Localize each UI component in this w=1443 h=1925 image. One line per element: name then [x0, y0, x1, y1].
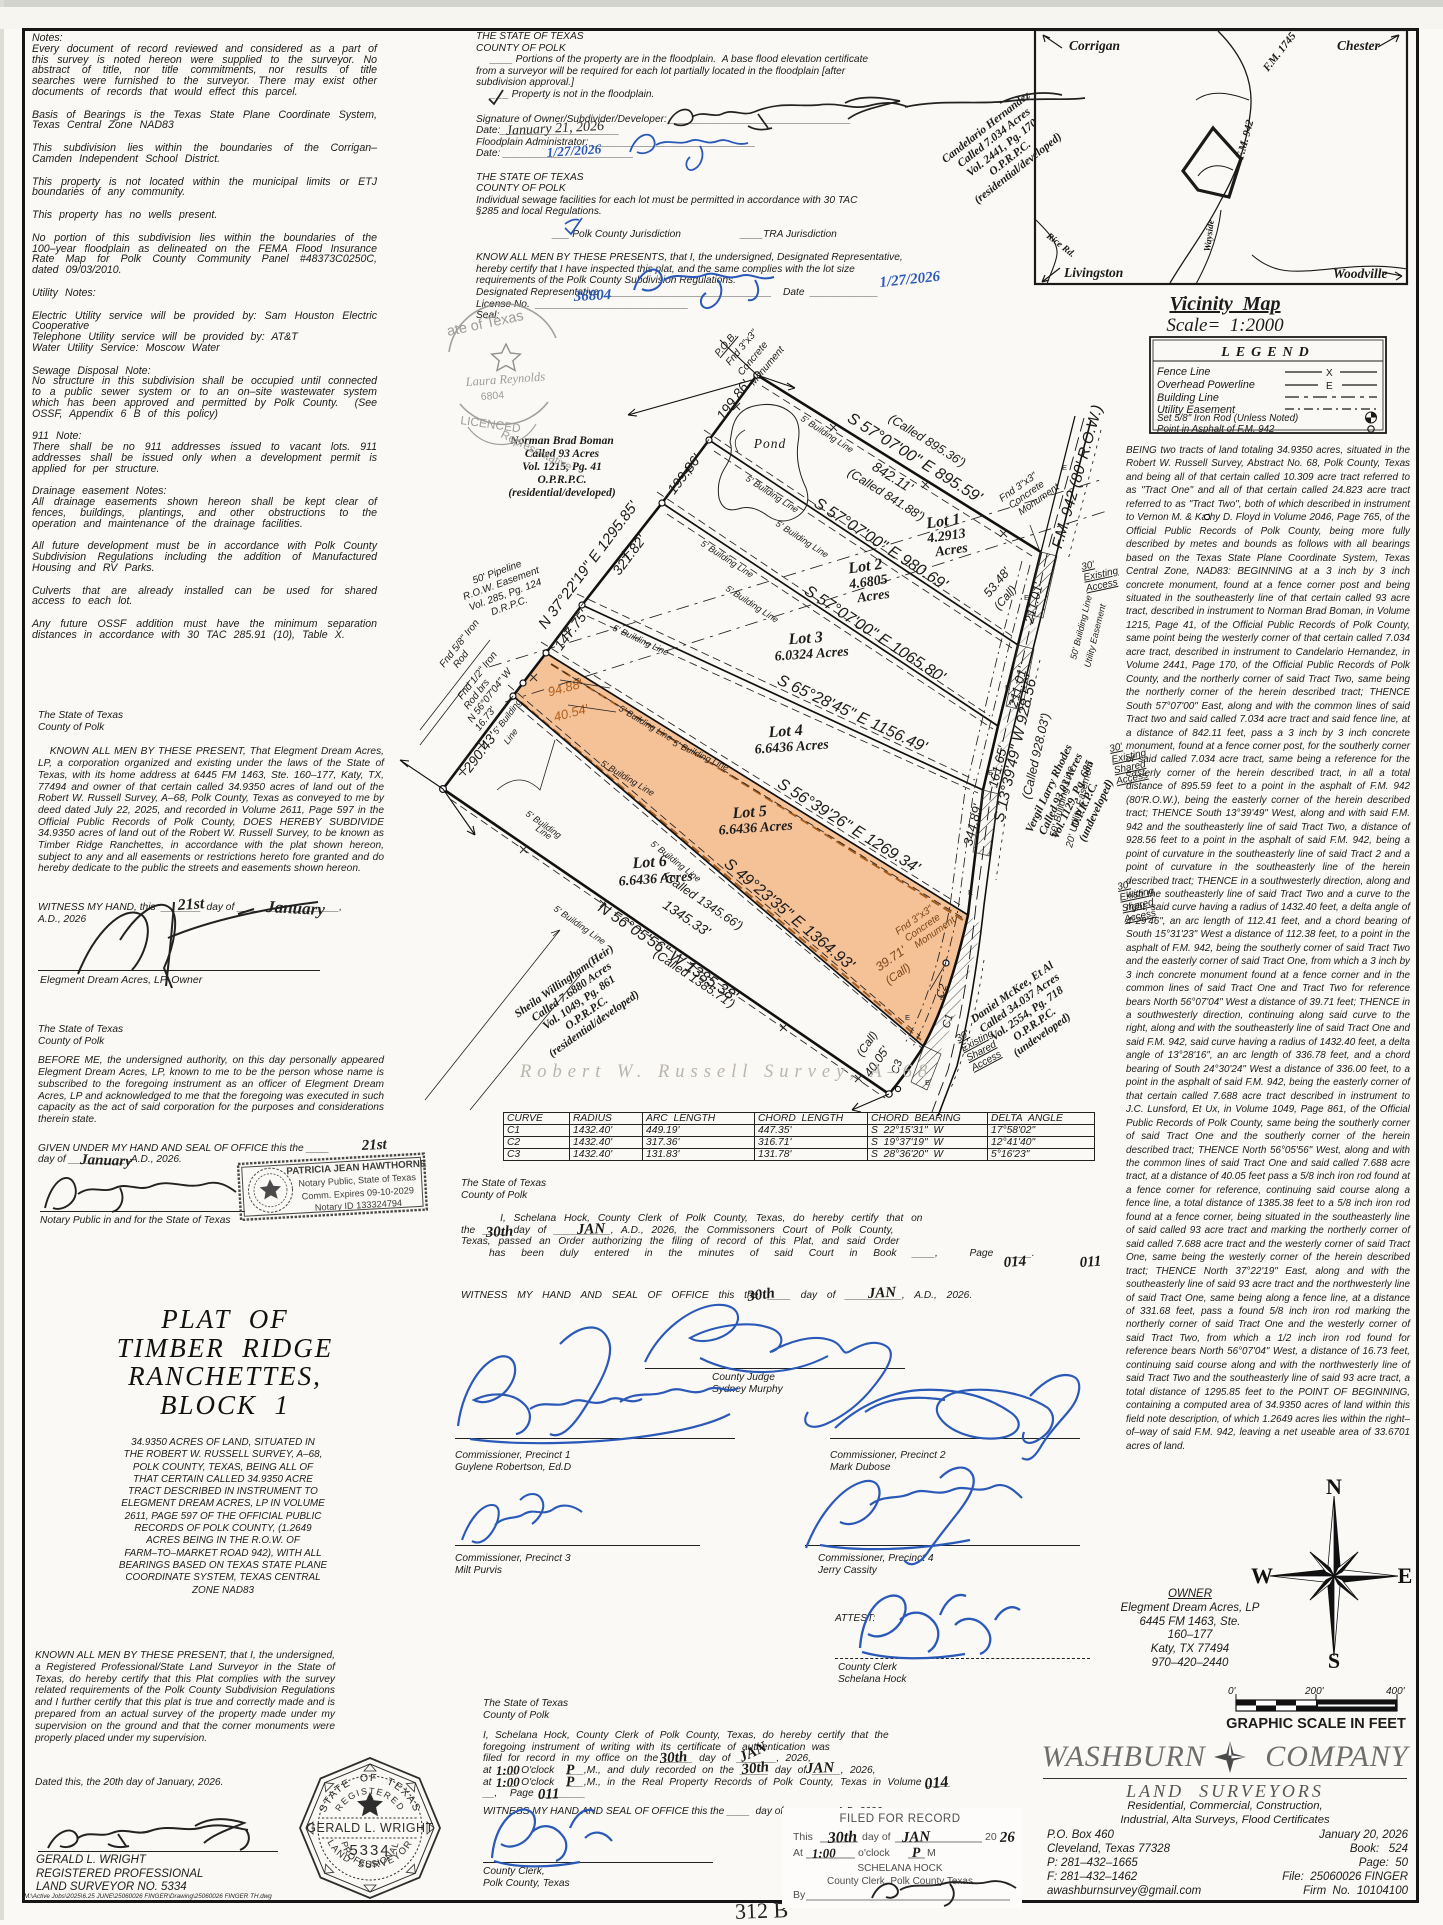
- svg-text:P: P: [566, 1775, 576, 1790]
- svg-text:E: E: [968, 888, 973, 897]
- svg-text:Point in Asphalt of F.M. 942: Point in Asphalt of F.M. 942: [1157, 424, 1275, 435]
- svg-text:30th: 30th: [658, 1749, 688, 1767]
- svg-text:5334: 5334: [349, 1842, 390, 1859]
- svg-text:F.M. 1745: F.M. 1745: [1260, 30, 1299, 75]
- svg-text:LEGEND: LEGEND: [1220, 345, 1315, 360]
- svg-text:(residential/developed): (residential/developed): [508, 487, 615, 499]
- svg-text:30th: 30th: [745, 1285, 775, 1305]
- svg-text:Rice Rd.: Rice Rd.: [1043, 231, 1076, 260]
- svg-text:6804: 6804: [480, 389, 504, 403]
- svg-text:1:00: 1:00: [496, 1774, 521, 1790]
- svg-text:1/27/2026: 1/27/2026: [546, 141, 602, 160]
- svg-text:(Called 1385.71'): (Called 1385.71'): [651, 946, 737, 1011]
- svg-text:Line: Line: [502, 727, 520, 747]
- svg-text:P: P: [912, 1846, 922, 1861]
- svg-text:January: January: [79, 1152, 133, 1170]
- svg-text:6.6436 Acres: 6.6436 Acres: [754, 737, 830, 757]
- svg-text:6.0324 Acres: 6.0324 Acres: [774, 644, 850, 664]
- svg-text:Robert W. Russell Survey, A–68: Robert W. Russell Survey, A–68: [519, 1062, 933, 1082]
- svg-text:Livingston: Livingston: [1063, 265, 1123, 280]
- svg-text:21st: 21st: [176, 895, 205, 914]
- svg-text:F.M. 942: F.M. 942: [1234, 118, 1256, 162]
- svg-text:014: 014: [924, 1774, 950, 1793]
- svg-text:E: E: [1062, 463, 1067, 472]
- svg-text:Chester: Chester: [1337, 38, 1381, 53]
- svg-text:Set 5/8" Iron Rod (Unless Note: Set 5/8" Iron Rod (Unless Noted): [1157, 413, 1298, 424]
- svg-text:JAN: JAN: [901, 1829, 932, 1846]
- svg-text:Woodville: Woodville: [1333, 266, 1388, 281]
- svg-text:E: E: [1326, 381, 1333, 392]
- svg-text:30th: 30th: [740, 1759, 770, 1778]
- svg-text:5' Building Line: 5' Building Line: [774, 518, 830, 559]
- svg-text:JAN: JAN: [576, 1221, 607, 1238]
- svg-text:SCHELANA HOCK: SCHELANA HOCK: [857, 1863, 942, 1874]
- svg-text:E: E: [1398, 1563, 1413, 1588]
- svg-text:26: 26: [999, 1829, 1016, 1846]
- svg-text:M: M: [927, 1847, 936, 1859]
- svg-text:011: 011: [538, 1786, 560, 1803]
- svg-text:014: 014: [1003, 1253, 1027, 1271]
- svg-text:S: S: [1328, 1648, 1340, 1673]
- svg-text:Building Line: Building Line: [1157, 392, 1219, 404]
- svg-text:FILED FOR RECORD: FILED FOR RECORD: [839, 1813, 960, 1825]
- svg-text:199.86': 199.86': [713, 376, 754, 423]
- svg-text:ate of Texas: ate of Texas: [446, 308, 526, 340]
- svg-text:5' Building Line: 5' Building Line: [611, 623, 670, 658]
- svg-text:011: 011: [1079, 1254, 1102, 1271]
- svg-text:30th: 30th: [484, 1224, 513, 1241]
- svg-text:January 21, 2026: January 21, 2026: [505, 119, 604, 139]
- svg-text:Wayside: Wayside: [1203, 219, 1217, 253]
- svg-text:C1: C1: [940, 1013, 955, 1030]
- svg-text:W: W: [1251, 1563, 1273, 1588]
- svg-text:N: N: [1326, 1474, 1342, 1499]
- svg-text:Laura Reynolds: Laura Reynolds: [464, 369, 545, 389]
- svg-text:290.43': 290.43': [459, 728, 501, 776]
- svg-text:Lot 3: Lot 3: [787, 629, 823, 648]
- svg-text:F.M. 942 (80' R.O.W.): F.M. 942 (80' R.O.W.): [1049, 403, 1106, 550]
- svg-text:This: This: [793, 1831, 813, 1843]
- svg-text:20: 20: [985, 1831, 997, 1843]
- svg-text:O.P.R.P.C.: O.P.R.P.C.: [537, 474, 586, 486]
- svg-text:day of: day of: [862, 1831, 891, 1843]
- svg-text:21st: 21st: [360, 1137, 388, 1154]
- svg-text:JAN: JAN: [805, 1760, 836, 1777]
- svg-text:1/27/2026: 1/27/2026: [879, 269, 942, 291]
- svg-text:By: By: [793, 1889, 806, 1901]
- svg-text:Overhead Powerline: Overhead Powerline: [1157, 379, 1255, 391]
- svg-text:GERALD L. WRIGHT: GERALD L. WRIGHT: [306, 1821, 433, 1835]
- svg-text:30th: 30th: [826, 1828, 857, 1847]
- svg-text:Corrigan: Corrigan: [1069, 38, 1120, 53]
- svg-text:5' Building Line: 5' Building Line: [724, 583, 780, 624]
- svg-text:o'clock: o'clock: [858, 1847, 891, 1859]
- svg-text:X: X: [1326, 368, 1333, 379]
- svg-text:1:00: 1:00: [812, 1845, 837, 1861]
- svg-text:At: At: [793, 1847, 803, 1859]
- svg-text:Fence Line: Fence Line: [1157, 366, 1210, 378]
- svg-text:199.86': 199.86': [664, 450, 705, 497]
- svg-text:Pond: Pond: [753, 436, 787, 451]
- svg-text:36804: 36804: [572, 287, 612, 305]
- svg-text:January: January: [265, 897, 326, 919]
- svg-text:Lot 4: Lot 4: [767, 722, 803, 741]
- svg-text:E: E: [905, 1013, 910, 1022]
- svg-text:Notary ID 133324794: Notary ID 133324794: [315, 1198, 403, 1213]
- svg-text:JAN: JAN: [866, 1284, 897, 1302]
- svg-text:Lot 5: Lot 5: [731, 803, 767, 822]
